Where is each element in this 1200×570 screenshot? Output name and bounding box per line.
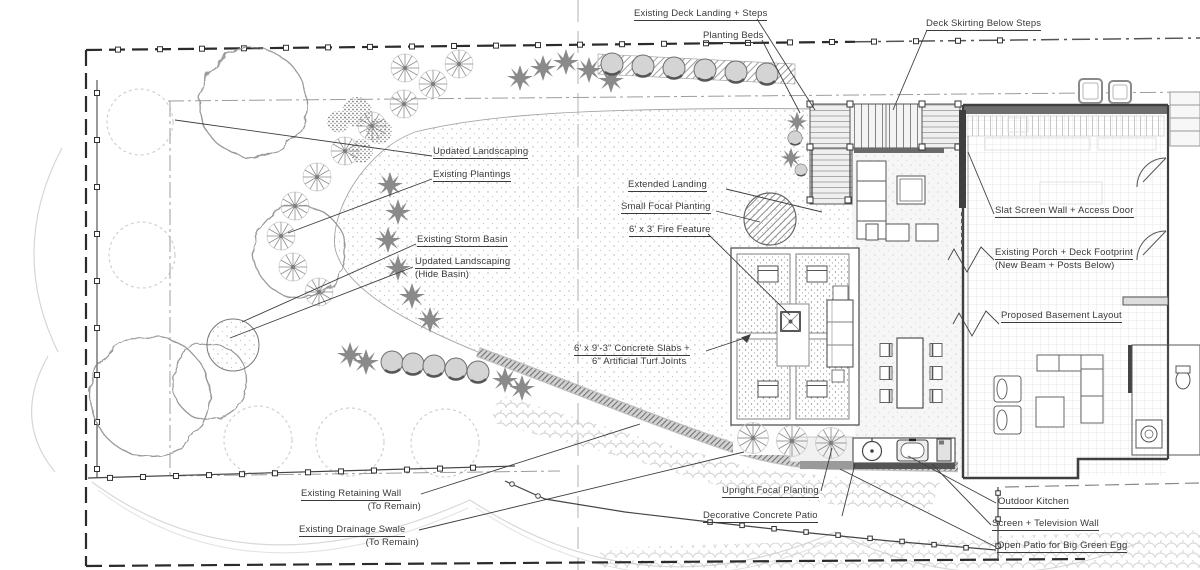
label-existing-retaining-wall: Existing Retaining Wall (To Remain) (301, 488, 421, 512)
label-decorative-concrete-patio: Decorative Concrete Patio (703, 510, 818, 523)
leader-retaining-wall (421, 424, 640, 494)
tree-canopies (90, 49, 346, 456)
storm-basin-tree (207, 319, 259, 371)
label-deck-skirting: Deck Skirting Below Steps (926, 18, 1041, 31)
label-extended-landing: Extended Landing (628, 179, 707, 192)
patio-sofa (827, 300, 853, 367)
label-existing-plantings: Existing Plantings (433, 169, 511, 182)
small-focal-planting-tree (744, 193, 796, 245)
label-screen-television-wall: Screen + Television Wall (992, 518, 1099, 531)
label-updated-landscaping-hide: Updated Landscaping (Hide Basin) (415, 256, 510, 280)
label-planting-beds: Planting Beds (703, 30, 764, 43)
dining-set (880, 338, 942, 408)
landscape-site-plan: Existing Deck Landing + Steps Planting B… (0, 0, 1200, 570)
screen-television-wall (853, 463, 955, 469)
deck-planters (1079, 79, 1131, 103)
label-existing-porch: Existing Porch + Deck Footprint (New Bea… (995, 247, 1133, 271)
leader-updated-landscaping (175, 120, 432, 156)
label-upright-focal-planting: Upright Focal Planting (722, 485, 819, 498)
fire-feature (781, 312, 800, 331)
label-existing-drainage-swale: Existing Drainage Swale (To Remain) (299, 524, 419, 548)
label-open-patio-egg: Open Patio for Big Green Egg (997, 540, 1127, 553)
left-fence (95, 80, 100, 477)
television (937, 439, 951, 461)
label-existing-deck-landing: Existing Deck Landing + Steps (634, 8, 767, 21)
label-fire-feature: 6' x 3' Fire Feature (629, 224, 711, 237)
label-proposed-basement: Proposed Basement Layout (1001, 310, 1122, 323)
label-updated-landscaping: Updated Landscaping (433, 146, 528, 159)
house-footprint (959, 79, 1200, 478)
label-small-focal-planting: Small Focal Planting (621, 201, 711, 214)
patio-chair (758, 266, 778, 282)
grill (897, 440, 928, 461)
label-slat-screen-wall: Slat Screen Wall + Access Door (995, 205, 1134, 218)
slat-screen-wall (959, 110, 966, 208)
concrete-slab-patio (731, 248, 859, 425)
outdoor-kitchen (790, 437, 955, 469)
label-existing-storm-basin: Existing Storm Basin (417, 234, 508, 247)
patio-chair (758, 381, 778, 397)
patio-chair (807, 266, 827, 282)
site-plan-drawing (0, 0, 1200, 570)
leader-drainage-swale (419, 452, 744, 530)
leader-open-patio-egg (840, 469, 996, 547)
patio-chair (807, 381, 827, 397)
label-outdoor-kitchen: Outdoor Kitchen (998, 496, 1069, 509)
label-concrete-slabs: 6' x 9'-3" Concrete Slabs + 6" Artificia… (574, 343, 690, 367)
